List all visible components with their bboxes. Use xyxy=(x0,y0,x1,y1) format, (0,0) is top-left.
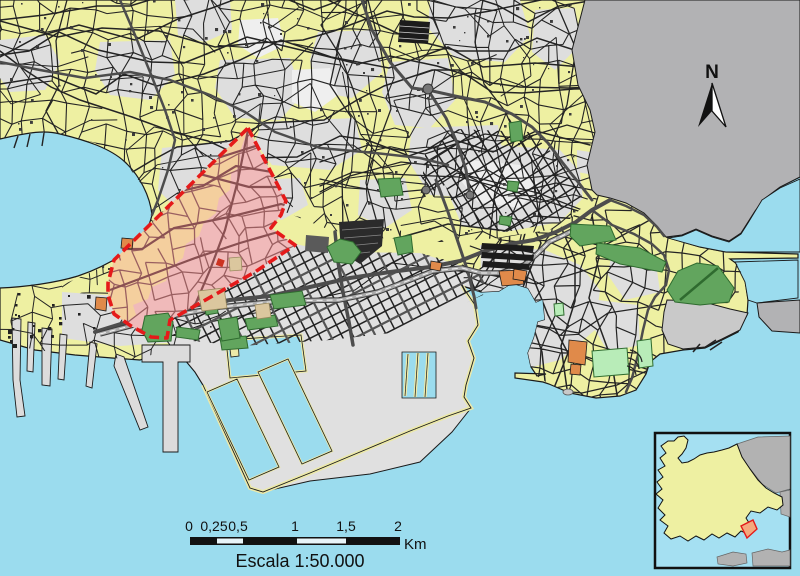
svg-text:N: N xyxy=(705,62,719,83)
svg-text:1,5: 1,5 xyxy=(336,518,356,534)
svg-text:0: 0 xyxy=(185,518,193,534)
svg-text:Escala 1:50.000: Escala 1:50.000 xyxy=(235,551,364,571)
svg-text:2: 2 xyxy=(394,518,402,534)
svg-text:0,25: 0,25 xyxy=(200,518,227,534)
svg-text:1: 1 xyxy=(291,518,299,534)
svg-text:Km: Km xyxy=(404,536,427,553)
svg-text:0,5: 0,5 xyxy=(228,518,248,534)
